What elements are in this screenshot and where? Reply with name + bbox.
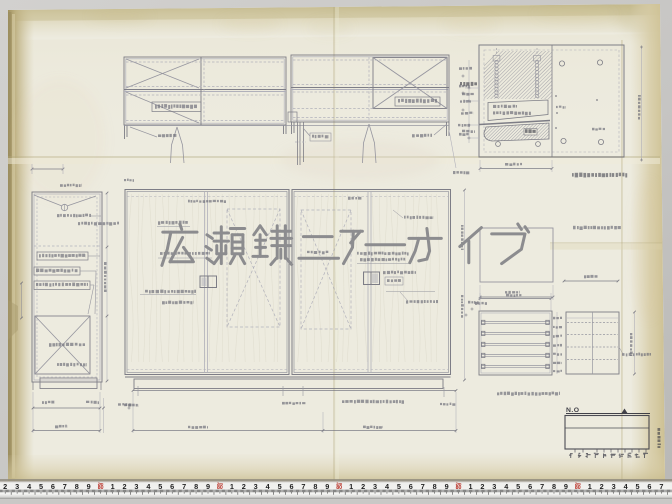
svg-text:1: 1 [468, 482, 472, 491]
svg-text:3: 3 [134, 482, 138, 491]
svg-text:3: 3 [612, 482, 616, 491]
svg-text:8: 8 [75, 482, 79, 491]
svg-text:6: 6 [170, 482, 174, 491]
svg-text:5: 5 [516, 482, 520, 491]
svg-text:8: 8 [194, 482, 198, 491]
svg-text:9: 9 [325, 482, 329, 491]
svg-text:7: 7 [540, 482, 544, 491]
svg-text:80: 80 [456, 485, 462, 491]
svg-text:8: 8 [433, 482, 437, 491]
svg-text:7: 7 [301, 482, 305, 491]
svg-text:2: 2 [242, 482, 246, 491]
svg-text:1: 1 [588, 482, 592, 491]
svg-text:6: 6 [647, 482, 651, 491]
svg-text:9: 9 [445, 482, 449, 491]
svg-text:1: 1 [230, 482, 234, 491]
svg-text:5: 5 [158, 482, 162, 491]
svg-text:7: 7 [182, 482, 186, 491]
svg-text:7: 7 [659, 482, 663, 491]
svg-text:N.O: N.O [566, 407, 580, 414]
svg-text:9: 9 [87, 482, 91, 491]
svg-text:3: 3 [373, 482, 377, 491]
svg-text:7: 7 [421, 482, 425, 491]
svg-text:80: 80 [575, 485, 581, 491]
svg-text:80: 80 [98, 485, 104, 491]
svg-text:3: 3 [15, 482, 19, 491]
svg-text:8: 8 [313, 482, 317, 491]
svg-text:6: 6 [289, 482, 293, 491]
svg-text:5: 5 [278, 482, 282, 491]
svg-text:6: 6 [528, 482, 532, 491]
svg-text:1: 1 [349, 482, 353, 491]
svg-text:2: 2 [480, 482, 484, 491]
svg-text:80: 80 [217, 485, 223, 491]
svg-text:2: 2 [3, 482, 7, 491]
svg-text:5: 5 [39, 482, 43, 491]
svg-text:3: 3 [492, 482, 496, 491]
svg-text:2: 2 [600, 482, 604, 491]
svg-text:9: 9 [564, 482, 568, 491]
svg-text:5: 5 [635, 482, 639, 491]
svg-text:6: 6 [409, 482, 413, 491]
svg-text:80: 80 [336, 485, 342, 491]
svg-text:6: 6 [51, 482, 55, 491]
svg-text:2: 2 [361, 482, 365, 491]
svg-text:7: 7 [63, 482, 67, 491]
svg-text:5: 5 [397, 482, 401, 491]
svg-text:2: 2 [122, 482, 126, 491]
svg-text:8: 8 [552, 482, 556, 491]
svg-text:1: 1 [111, 482, 115, 491]
svg-text:9: 9 [206, 482, 210, 491]
svg-text:3: 3 [254, 482, 258, 491]
